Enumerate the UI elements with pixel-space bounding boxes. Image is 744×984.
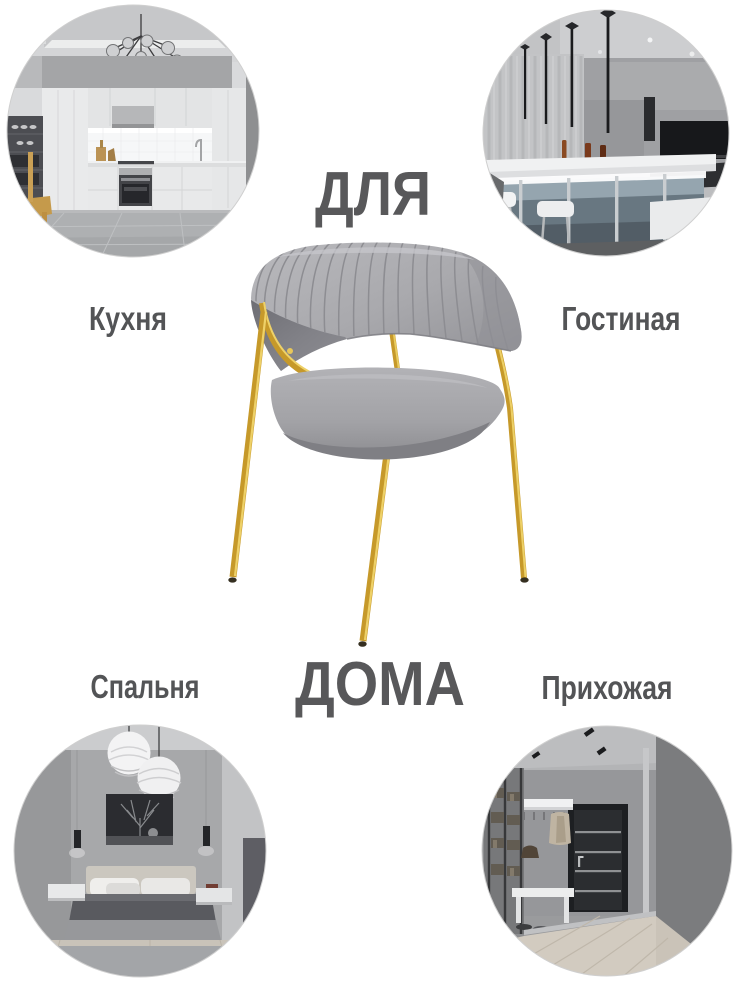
svg-text:Прихожая: Прихожая xyxy=(542,669,673,706)
svg-text:Кухня: Кухня xyxy=(89,300,167,337)
svg-text:Спальня: Спальня xyxy=(91,668,200,705)
svg-text:ДЛЯ: ДЛЯ xyxy=(315,160,431,229)
svg-text:Гостиная: Гостиная xyxy=(562,300,681,337)
svg-text:ДОМА: ДОМА xyxy=(295,650,465,719)
